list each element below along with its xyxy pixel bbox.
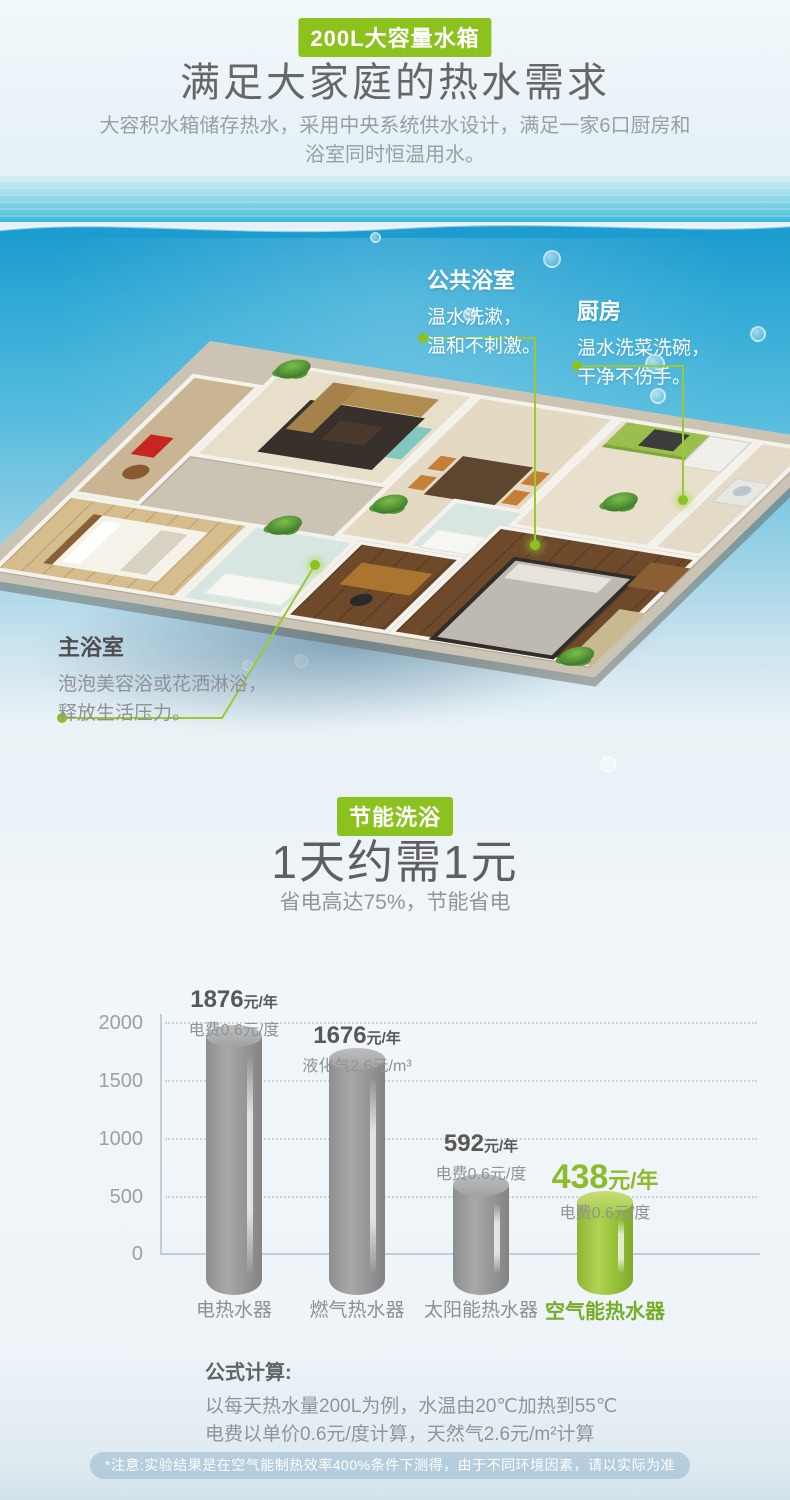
promo-page: 200L大容量水箱 满足大家庭的热水需求 大容积水箱储存热水，采用中央系统供水设… <box>0 0 790 1500</box>
callout-title: 厨房 <box>577 294 710 326</box>
bar-unit: 元/年 <box>608 1168 658 1193</box>
bar-solar <box>453 1000 509 1253</box>
bar-unit: 元/年 <box>367 1030 401 1047</box>
callout-title: 公共浴室 <box>427 263 541 295</box>
endpoint-dot-public-bath <box>530 540 540 550</box>
callout-line: 释放生活压力。 <box>58 699 267 728</box>
callout-line: 干净不伤手。 <box>577 363 710 392</box>
bar-note: 电费0.6元/度 <box>505 1199 705 1223</box>
bar-cylinder <box>453 1185 509 1295</box>
bar-label-airsource: 438元/年 电费0.6元/度 <box>505 1158 705 1223</box>
y-tick: 1000 <box>73 1128 143 1151</box>
formula-line: 电费以单价0.6元/度计算，天然气2.6元/m²计算 <box>205 1421 635 1449</box>
bar-value: 438 <box>552 1158 609 1196</box>
callout-line: 温水洗菜洗碗， <box>577 334 710 363</box>
callout-title: 主浴室 <box>58 630 267 662</box>
desk-chair <box>346 592 378 607</box>
bubble <box>543 250 561 268</box>
bubble <box>600 756 616 772</box>
bar-value: 1676 <box>313 1022 366 1049</box>
saving-title: 1天约需1元 <box>0 826 790 892</box>
red-chair <box>131 434 174 457</box>
saving-subtitle: 省电高达75%，节能省电 <box>0 886 790 916</box>
page-title: 满足大家庭的热水需求 <box>0 50 790 108</box>
callout-line: 温和不刺激。 <box>427 332 541 361</box>
y-axis <box>160 1014 162 1253</box>
bubble <box>370 232 381 243</box>
y-tick: 2000 <box>73 1012 143 1035</box>
page-description: 大容积水箱储存热水，采用中央系统供水设计，满足一家6口厨房和浴室同时恒温用水。 <box>95 112 695 170</box>
desk <box>339 562 432 595</box>
bar-unit: 元/年 <box>244 994 278 1011</box>
bar-value: 592 <box>444 1130 484 1157</box>
y-tick: 0 <box>73 1243 143 1266</box>
callout-line: 温水洗漱， <box>427 303 541 332</box>
callout-master-bathroom: 主浴室 泡泡美容浴或花洒淋浴， 释放生活压力。 <box>58 630 267 729</box>
bubble <box>750 326 766 342</box>
category-airsource: 空气能热水器 <box>530 1295 680 1324</box>
bar-cylinder <box>206 1036 262 1295</box>
formula-title: 公式计算: <box>205 1356 635 1385</box>
bar-unit: 元/年 <box>484 1138 518 1155</box>
bar-label-gas: 1676元/年 液化气2.6元/m³ <box>257 1022 457 1076</box>
y-tick: 1500 <box>73 1070 143 1093</box>
cost-comparison-chart: 2000 1500 1000 500 0 1876元/年 电费0.6元/度 16… <box>0 1000 790 1340</box>
y-tick: 500 <box>73 1186 143 1209</box>
bar-note: 液化气2.6元/m³ <box>257 1052 457 1076</box>
formula-block: 公式计算: 以每天热水量200L为例，水温由20℃加热到55℃ 电费以单价0.6… <box>205 1356 635 1448</box>
callout-public-bathroom: 公共浴室 温水洗漱， 温和不刺激。 <box>427 263 541 362</box>
endpoint-dot-master-bath <box>310 560 320 570</box>
formula-line: 以每天热水量200L为例，水温由20℃加热到55℃ <box>205 1393 635 1421</box>
endpoint-dot-kitchen <box>678 495 688 505</box>
terrace-table <box>117 463 154 481</box>
callout-line: 泡泡美容浴或花洒淋浴， <box>58 670 267 699</box>
disclaimer-bar: *注意:实验结果是在空气能制热效率400%条件下测得，由于不同环境因素，请以实际… <box>90 1452 690 1479</box>
bathtub-master <box>202 572 304 607</box>
bar-cylinder <box>329 1059 385 1295</box>
callout-kitchen: 厨房 温水洗菜洗碗， 干净不伤手。 <box>577 294 710 393</box>
bar-value: 1876 <box>190 986 243 1013</box>
